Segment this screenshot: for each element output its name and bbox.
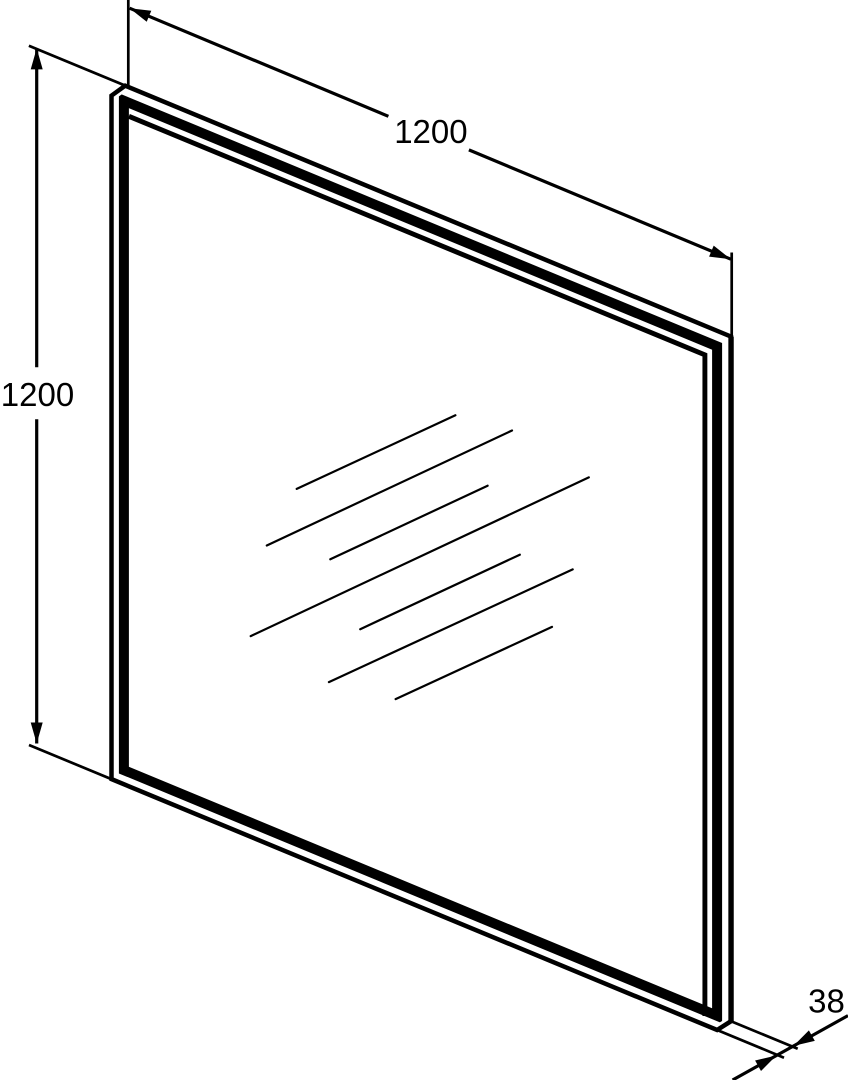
svg-text:38: 38 — [808, 983, 845, 1020]
svg-text:1200: 1200 — [1, 376, 74, 413]
svg-text:1200: 1200 — [394, 113, 467, 150]
